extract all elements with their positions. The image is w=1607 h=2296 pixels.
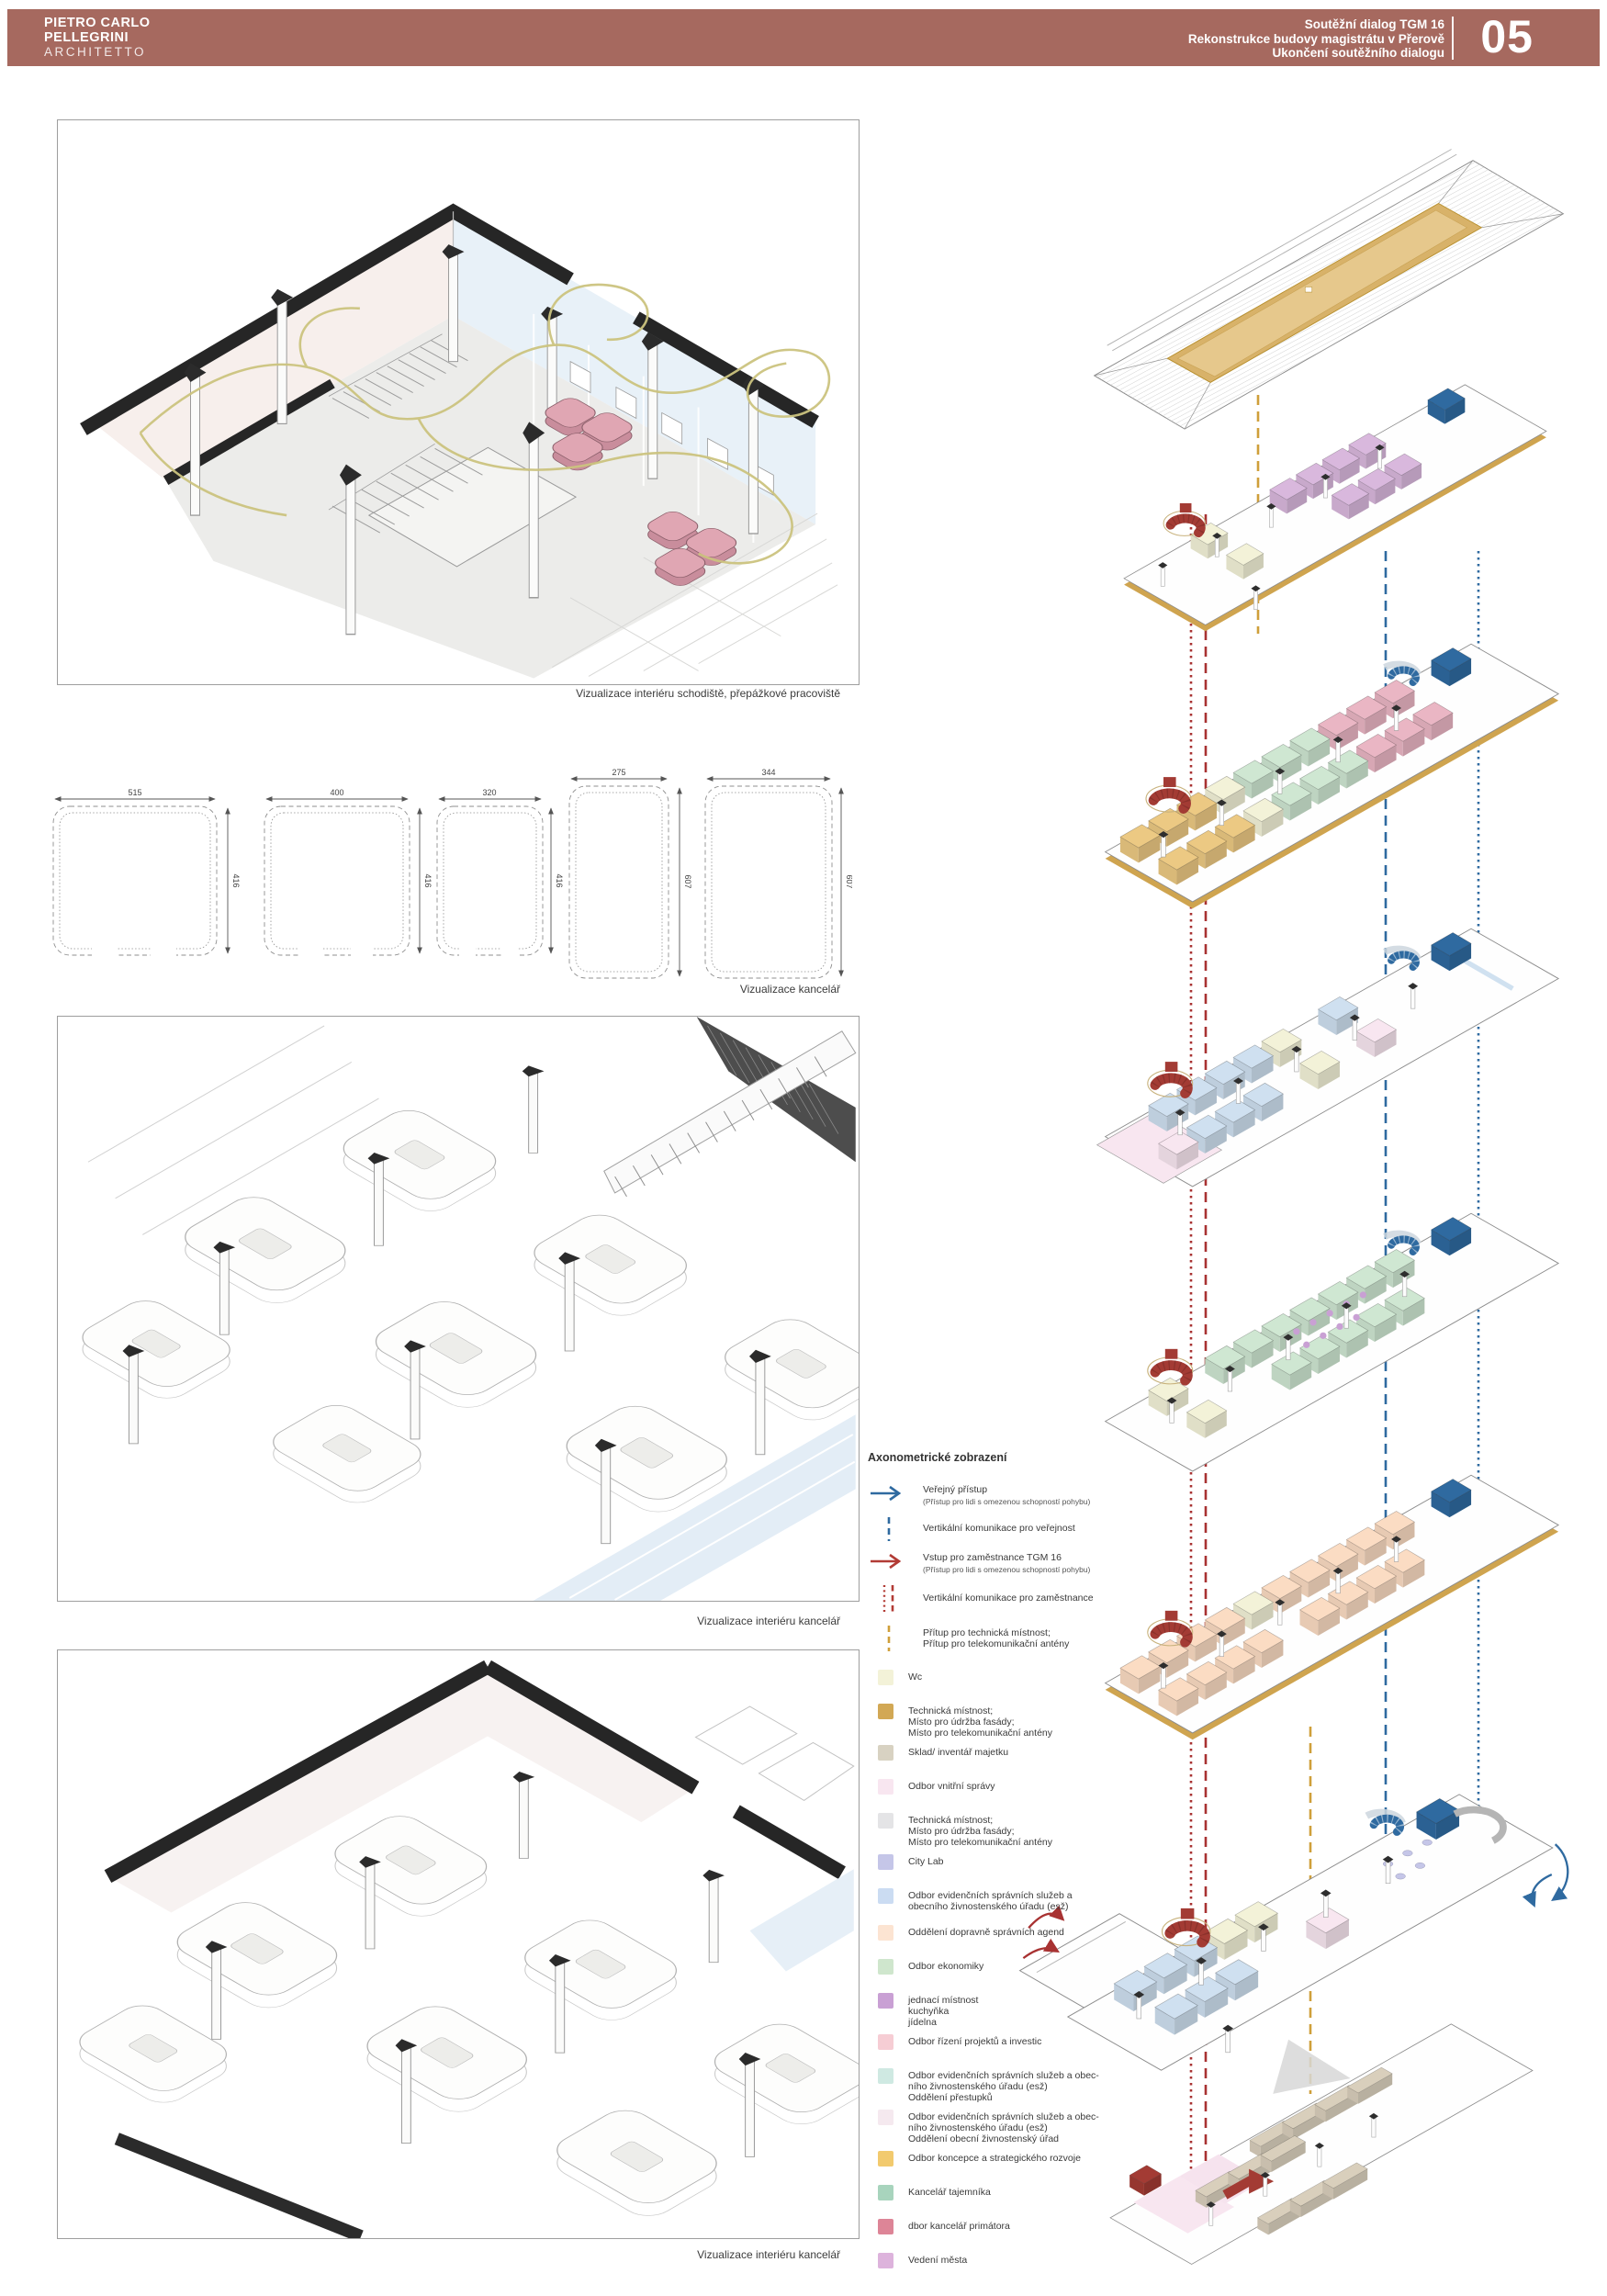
axon-floor-offices-1 [1047,1180,1579,1480]
legend-item: dbor kancelář primátora [868,2219,1171,2234]
dim-desk2-width: 400 [330,788,343,797]
desk-dimensions-svg: 515 400 320 275 344 416 416 416 607 607 [44,759,852,988]
legend-item-label: Odbor evidenčních správních služeb a obe… [908,2068,1099,2103]
dim-desk1-width: 515 [128,788,141,797]
public-access-arrow-icon [868,1484,910,1503]
header-divider [1452,17,1454,60]
header-bar: PIETRO CARLO PELLEGRINI ARCHITETTO Soutě… [7,9,1600,66]
axon-legend: Axonometrické zobrazení Veřejný přístup … [868,1451,1171,2287]
legend-item-label: Odbor evidenčních správních služeb a obe… [908,2110,1099,2144]
studio-name-line3: ARCHITETTO [44,45,151,60]
legend-flow-label: Přítup pro technická místnost; Přítup pr… [923,1624,1069,1649]
dim-desk1-height: 416 [231,873,241,887]
legend-item: Odbor koncepce a strategického rozvoje [868,2151,1171,2167]
legend-flow-public-access: Veřejný přístup (Přístup pro lidi s omez… [868,1484,1171,1506]
legend-swatch [878,2185,893,2200]
dim-desk5-width: 344 [761,768,775,777]
legend-item: City Lab [868,1854,1171,1870]
staff-vertical-dashed-icon [868,1583,910,1615]
dim-desk3-width: 320 [482,788,496,797]
viz-interior-office-2-drawing [58,1650,859,2238]
axon-floor-attic [1070,354,1566,633]
legend-flow-public-vertical: Vertikální komunikace pro veřejnost [868,1515,1171,1543]
legend-item: Odbor evidenčních správních služeb a obe… [868,2068,1171,2103]
staff-entry-arrow-icon [868,1552,910,1570]
desk-dimension-drawings: 515 400 320 275 344 416 416 416 607 607 [44,759,852,988]
caption-viz1: Vizualizace interiéru schodiště, přepážk… [381,687,840,700]
legend-item-label: Kancelář tajemníka [908,2185,991,2198]
legend-swatch [878,2151,893,2167]
legend-item: Technická místnost; Místo pro údržba fas… [868,1813,1171,1848]
legend-swatch [878,2034,893,2050]
viz-interior-office-2 [57,1649,860,2239]
legend-swatch [878,2110,893,2125]
legend-flow-technical-access: Přítup pro technická místnost; Přítup pr… [868,1624,1171,1653]
project-title-line2: Rekonstrukce budovy magistrátu v Přerově [1188,32,1444,47]
legend-item-label: jednací místnost kuchyňka jídelna [908,1993,978,2028]
legend-item-label: Technická místnost; Místo pro údržba fas… [908,1813,1052,1848]
legend-flow-staff-vertical: Vertikální komunikace pro zaměstnance [868,1583,1171,1615]
legend-swatch [878,1670,893,1685]
axon-floor-offices-3 [1047,611,1579,910]
studio-name-line1: PIETRO CARLO [44,16,151,30]
legend-item: Odbor řízení projektů a investic [868,2034,1171,2050]
project-title: Soutěžní dialog TGM 16 Rekonstrukce budo… [1188,17,1444,61]
legend-title: Axonometrické zobrazení [868,1451,1171,1464]
legend-item-label: Odbor ekonomiky [908,1959,983,1972]
legend-item: Wc [868,1670,1171,1685]
legend-item-label: dbor kancelář primátora [908,2219,1010,2232]
legend-item-label: Vedení města [908,2253,967,2266]
project-title-line3: Ukončení soutěžního dialogu [1188,46,1444,61]
legend-flow-label: Vertikální komunikace pro veřejnost [923,1515,1075,1534]
legend-item-label: Sklad/ inventář majetku [908,1745,1008,1758]
legend-swatch [878,1959,893,1975]
legend-item: Sklad/ inventář majetku [868,1745,1171,1761]
legend-item: Oddělení dopravně správních agend [868,1925,1171,1941]
dim-desk4-width: 275 [612,768,625,777]
legend-flow-staff-entry: Vstup pro zaměstnance TGM 16 (Přístup pr… [868,1552,1171,1574]
viz-interior-office-1 [57,1016,860,1602]
studio-name-line2: PELLEGRINI [44,30,151,45]
page-number: 05 [1480,10,1534,63]
dim-desk3-height: 416 [555,873,564,887]
legend-item: Kancelář tajemníka [868,2185,1171,2200]
legend-swatch [878,1925,893,1941]
dim-desk2-height: 416 [423,873,433,887]
legend-item: jednací místnost kuchyňka jídelna [868,1993,1171,2028]
legend-item-label: Odbor evidenčních správních služeb a obe… [908,1888,1073,1912]
legend-item-label: Odbor koncepce a strategického rozvoje [908,2151,1081,2164]
legend-swatch [878,1779,893,1795]
project-title-line1: Soutěžní dialog TGM 16 [1188,17,1444,32]
dim-desk4-height: 607 [683,874,692,888]
technical-access-dashed-icon [868,1624,910,1653]
studio-logo: PIETRO CARLO PELLEGRINI ARCHITETTO [44,16,151,60]
caption-viz4: Vizualizace interiéru kancelář [381,2248,840,2261]
legend-flow-label: Veřejný přístup [923,1484,1090,1495]
legend-item: Technická místnost; Místo pro údržba fas… [868,1704,1171,1739]
viz-interior-staircase [57,119,860,685]
legend-swatch [878,1745,893,1761]
dim-desk5-height: 607 [845,874,852,888]
legend-swatch [878,1888,893,1904]
legend-flow-sublabel: (Přístup pro lidi s omezenou schopností … [923,1497,1090,1506]
legend-swatch [878,1854,893,1870]
legend-swatch [878,1993,893,2009]
legend-item: Odbor vnitřní správy [868,1779,1171,1795]
legend-item-label: City Lab [908,1854,944,1867]
legend-swatch [878,2253,893,2268]
legend-swatch [878,1813,893,1829]
legend-item: Vedení města [868,2253,1171,2268]
presentation-board: PIETRO CARLO PELLEGRINI ARCHITETTO Soutě… [0,0,1607,2296]
legend-item-label: Wc [908,1670,922,1683]
legend-item: Odbor evidenčních správních služeb a obe… [868,2110,1171,2144]
legend-items: Wc Technická místnost; Místo pro údržba … [868,1670,1171,2268]
legend-swatch [878,2068,893,2084]
viz-interior-office-1-drawing [58,1017,859,1601]
legend-flow-sublabel: (Přístup pro lidi s omezenou schopností … [923,1565,1090,1574]
legend-flow-label: Vstup pro zaměstnance TGM 16 [923,1552,1090,1563]
public-vertical-dashed-icon [868,1515,910,1543]
caption-viz3: Vizualizace interiéru kancelář [381,1615,840,1627]
legend-item: Odbor ekonomiky [868,1959,1171,1975]
legend-item: Odbor evidenčních správních služeb a obe… [868,1888,1171,1912]
legend-item-label: Technická místnost; Místo pro údržba fas… [908,1704,1052,1739]
legend-item-label: Odbor řízení projektů a investic [908,2034,1041,2047]
legend-swatch [878,2219,893,2234]
legend-item-label: Oddělení dopravně správních agend [908,1925,1064,1938]
caption-viz2: Vizualizace kancelář [381,983,840,996]
legend-swatch [878,1704,893,1719]
legend-item-label: Odbor vnitřní správy [908,1779,995,1792]
viz-interior-staircase-drawing [58,120,859,684]
legend-flow-label: Vertikální komunikace pro zaměstnance [923,1583,1094,1604]
axon-floor-offices-2 [1047,895,1579,1195]
